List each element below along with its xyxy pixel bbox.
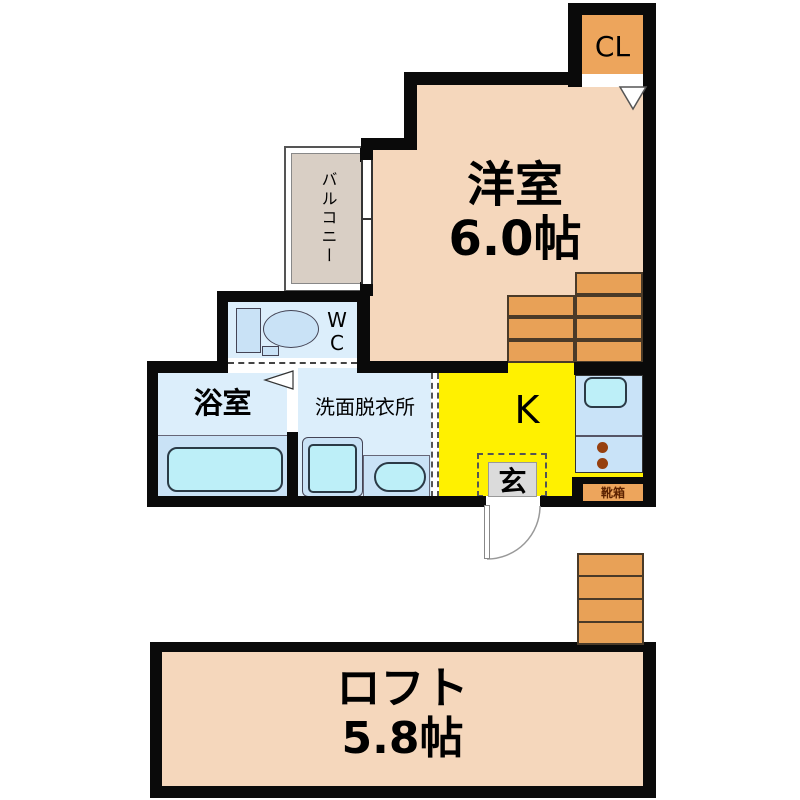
shoe-cabinet-label: 靴箱 bbox=[601, 484, 625, 501]
toilet-bowl bbox=[263, 310, 319, 348]
toilet-door bbox=[228, 358, 357, 368]
main-room-name: 洋室 bbox=[467, 157, 563, 213]
window-mullion bbox=[363, 218, 371, 220]
loft-area: 5.8帖 bbox=[342, 713, 464, 764]
wall-bathroom-top bbox=[147, 361, 228, 373]
washing-machine bbox=[308, 444, 357, 493]
balcony-window bbox=[361, 160, 373, 284]
wall-top bbox=[404, 72, 570, 85]
toilet-label: W C bbox=[322, 308, 352, 356]
bathroom-label-box: 浴室 bbox=[158, 380, 287, 422]
wall-closet-left bbox=[568, 3, 582, 87]
entrance-door-leaf bbox=[484, 505, 490, 559]
wall-toilet-top bbox=[217, 291, 370, 302]
bathroom-label: 浴室 bbox=[193, 380, 251, 422]
wall-loft-right bbox=[643, 642, 656, 798]
balcony-floor: バルコニー bbox=[291, 153, 364, 284]
loft-label-box: ロフト 5.8帖 bbox=[162, 658, 643, 770]
stove-burner-1 bbox=[597, 442, 608, 453]
floor-plan: バルコニー W C bbox=[0, 0, 800, 800]
entrance-door-arc bbox=[481, 500, 545, 564]
wall-bath-washroom-divider bbox=[287, 431, 298, 497]
washroom-accordion-door bbox=[431, 373, 439, 497]
toilet-door-dash bbox=[228, 362, 357, 364]
stair-step bbox=[575, 340, 643, 363]
loft-stair-step bbox=[577, 598, 644, 623]
loft-stair-step bbox=[577, 621, 644, 645]
wall-loft-left bbox=[150, 642, 162, 798]
main-room-label-box: 洋室 6.0帖 bbox=[395, 152, 635, 272]
balcony-label: バルコニー bbox=[316, 171, 340, 266]
main-room-area: 6.0帖 bbox=[448, 211, 581, 267]
stair-step bbox=[507, 295, 575, 317]
closet-label: CL bbox=[595, 30, 630, 63]
loft-name: ロフト bbox=[337, 663, 469, 714]
entrance-floor: 玄 bbox=[488, 462, 537, 497]
kitchen-label: K bbox=[515, 388, 540, 432]
toilet-tank bbox=[236, 308, 261, 353]
closet-door-icon bbox=[618, 86, 648, 112]
stair-step bbox=[507, 340, 575, 363]
balcony: バルコニー bbox=[284, 146, 372, 292]
counter-divider bbox=[576, 435, 642, 437]
wall-right bbox=[643, 3, 656, 507]
stair-step bbox=[575, 317, 643, 340]
wall-bottom-left bbox=[147, 496, 486, 507]
loft-stair-step bbox=[577, 553, 644, 577]
toilet-flush-handle bbox=[262, 346, 279, 356]
toilet-label-w: W bbox=[327, 308, 347, 332]
vanity-sink bbox=[374, 462, 426, 492]
stair-step bbox=[575, 272, 643, 295]
kitchen-sink bbox=[584, 377, 627, 408]
washroom-label: 洗面脱衣所 bbox=[315, 391, 415, 420]
wall-mainroom-bottom-left bbox=[357, 361, 508, 373]
wall-loft-bottom bbox=[150, 786, 656, 798]
entrance-label: 玄 bbox=[498, 460, 526, 500]
washroom-label-box: 洗面脱衣所 bbox=[298, 391, 432, 419]
stove-burner-2 bbox=[597, 458, 608, 469]
bathtub bbox=[167, 447, 283, 492]
loft-stair-step bbox=[577, 575, 644, 600]
wall-mainroom-bottom-right bbox=[574, 362, 656, 375]
closet-label-box: CL bbox=[582, 15, 643, 77]
wall-left-lower bbox=[147, 361, 158, 507]
stair-step bbox=[575, 295, 643, 317]
stair-step bbox=[507, 317, 575, 340]
kitchen-label-box: K bbox=[467, 388, 587, 432]
shoe-cabinet: 靴箱 bbox=[583, 484, 643, 501]
toilet-label-c: C bbox=[330, 331, 344, 355]
wall-toilet-right bbox=[357, 291, 370, 363]
